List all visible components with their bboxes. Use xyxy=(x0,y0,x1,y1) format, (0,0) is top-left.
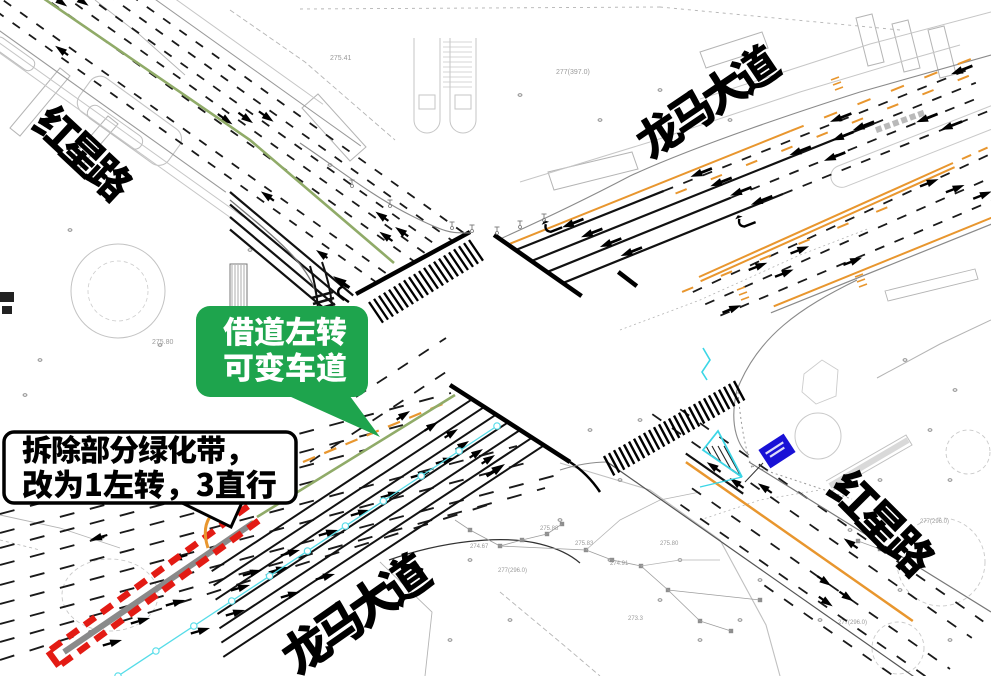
svg-text:277(296.0): 277(296.0) xyxy=(498,568,527,574)
svg-text:277(397.0): 277(397.0) xyxy=(556,69,590,76)
svg-text:275.88: 275.88 xyxy=(540,526,559,532)
svg-text:277(296.0): 277(296.0) xyxy=(920,519,949,525)
svg-text:275.80: 275.80 xyxy=(152,339,174,346)
svg-text:273.3: 273.3 xyxy=(628,616,644,622)
svg-text:274.67: 274.67 xyxy=(470,544,489,550)
svg-text:275.80: 275.80 xyxy=(660,541,679,547)
svg-text:275.41: 275.41 xyxy=(330,55,352,62)
svg-text:277(296.0): 277(296.0) xyxy=(838,620,867,626)
svg-text:275.83: 275.83 xyxy=(575,541,594,547)
